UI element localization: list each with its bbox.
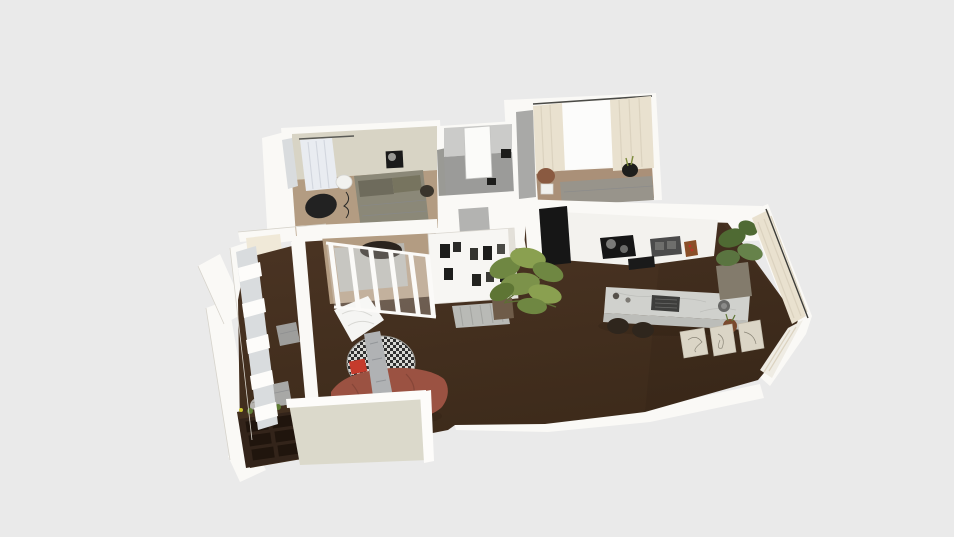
jar: [613, 293, 619, 299]
cutting-board[interactable]: [684, 240, 698, 257]
bar-stool-1[interactable]: [607, 318, 629, 334]
floor-pouf-1[interactable]: [276, 322, 300, 346]
bed-pillow-2: [392, 175, 422, 193]
cooktop[interactable]: [600, 235, 636, 259]
curtain-left: [533, 103, 565, 174]
shower-panel[interactable]: [464, 126, 492, 179]
tall-planter: [716, 262, 752, 300]
frame-1[interactable]: [680, 328, 708, 358]
bowl: [625, 297, 630, 302]
side-table-round[interactable]: [336, 175, 352, 189]
south-wall-slab: [286, 390, 434, 465]
bed-pillow-1: [358, 178, 394, 197]
bathroom[interactable]: [444, 124, 514, 199]
bar-stool-2[interactable]: [632, 322, 654, 338]
decor-1: [440, 244, 450, 258]
decor-7: [472, 274, 481, 286]
decor-5: [483, 246, 492, 260]
bedroom-a[interactable]: [282, 126, 448, 236]
hall-art[interactable]: [458, 207, 490, 232]
kitchen-sink[interactable]: [650, 236, 682, 257]
frame-3[interactable]: [738, 320, 764, 352]
decor-4: [470, 248, 478, 260]
sink-basin-2: [667, 241, 676, 249]
bedside-stool[interactable]: [420, 185, 434, 197]
bedroom-b-window: [558, 100, 615, 170]
black-planter[interactable]: [622, 163, 638, 177]
food-dot-2: [691, 249, 694, 252]
bath-floor-item: [487, 178, 496, 185]
island-drain: [721, 303, 727, 309]
floorplan-render: [0, 0, 954, 537]
pot-1: [606, 239, 616, 249]
cube-table: [541, 184, 553, 194]
pot-2: [620, 245, 628, 253]
decor-2: [453, 242, 461, 252]
bedroom-b-gray-wall: [516, 110, 536, 199]
accent-chair[interactable]: [537, 168, 555, 184]
dresser-plant-1: [247, 408, 253, 414]
sliding-partition[interactable]: [326, 243, 436, 317]
sink-basin-1: [655, 242, 664, 250]
bath-wall-box: [501, 149, 511, 158]
decor-6: [497, 244, 505, 254]
floorplan-canvas[interactable]: [0, 0, 954, 537]
decor-3: [444, 268, 453, 280]
moon-print: [388, 153, 396, 161]
dresser-plant-yellow: [239, 408, 243, 412]
food-dot-1: [689, 245, 692, 248]
